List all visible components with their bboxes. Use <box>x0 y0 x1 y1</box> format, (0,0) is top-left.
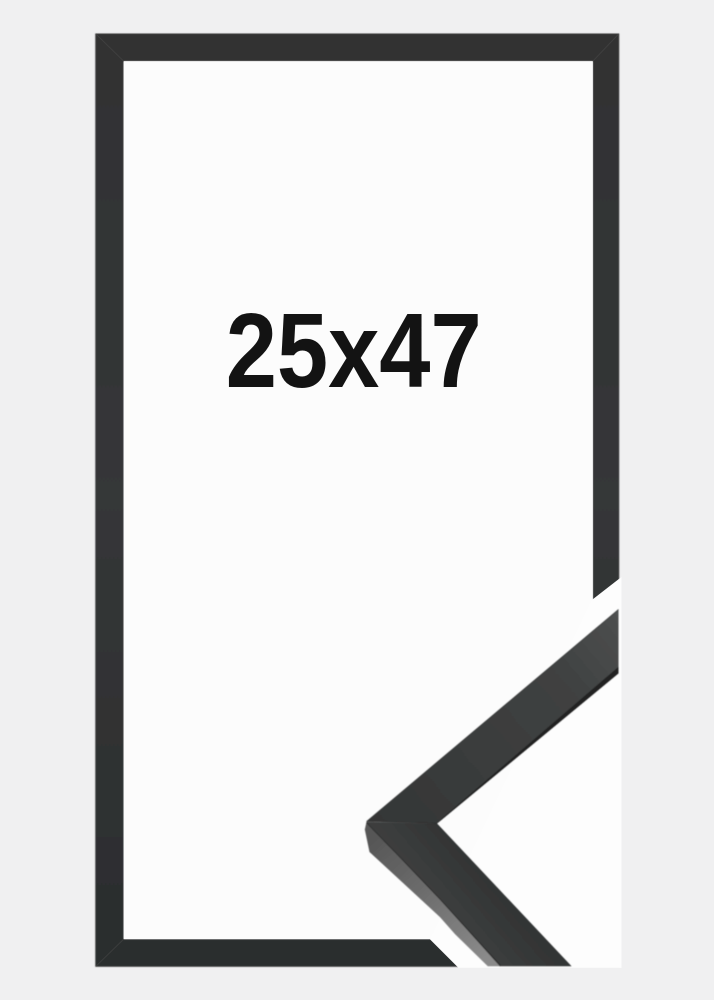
svg-text:25x47: 25x47 <box>226 292 482 410</box>
